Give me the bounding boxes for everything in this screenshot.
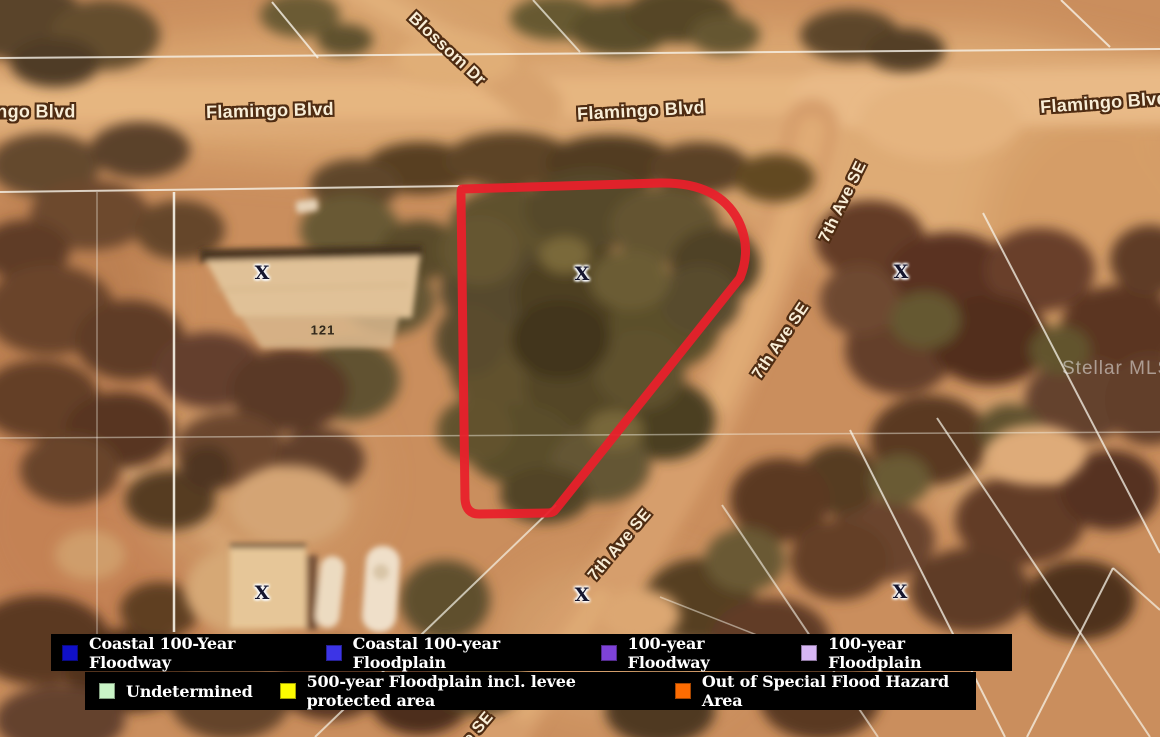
legend-label: Out of Special Flood Hazard Area	[702, 672, 949, 710]
flood-zone-x-marker: X	[893, 581, 908, 603]
street-label-flamingo-blvd-midleft: Flamingo Blvd	[206, 99, 334, 123]
legend-item-100yr-floodway: 100-year Floodway	[601, 634, 774, 672]
flood-zone-x-marker: X	[894, 261, 909, 283]
legend-label: 100-year Floodway	[628, 634, 774, 672]
legend-item-undetermined: Undetermined	[99, 682, 253, 701]
flood-zone-x-marker: X	[575, 584, 590, 606]
legend-swatch	[675, 683, 691, 699]
legend-item-500yr-floodplain: 500-year Floodplain incl. levee protecte…	[280, 672, 648, 710]
legend-item-coastal-floodplain: Coastal 100-year Floodplain	[326, 634, 574, 672]
legend-swatch	[99, 683, 115, 699]
legend-item-coastal-floodway: Coastal 100-Year Floodway	[62, 634, 299, 672]
legend-swatch	[280, 683, 296, 699]
flood-map-screenshot: ngo Blvd Flamingo Blvd Blossom Dr Flamin…	[0, 0, 1160, 737]
legend-label: Coastal 100-year Floodplain	[353, 634, 574, 672]
legend-item-100yr-floodplain: 100-year Floodplain	[801, 634, 985, 672]
legend-label: 500-year Floodplain incl. levee protecte…	[307, 672, 648, 710]
flood-zone-x-marker: X	[255, 582, 270, 604]
legend-swatch	[601, 645, 617, 661]
flood-zone-x-marker: X	[575, 263, 590, 285]
legend-swatch	[801, 645, 817, 661]
flood-legend-row-2: Undetermined 500-year Floodplain incl. l…	[85, 672, 976, 710]
legend-label: Coastal 100-Year Floodway	[89, 634, 299, 672]
stellar-mls-watermark: Stellar MLS	[1062, 358, 1160, 380]
flood-zone-x-marker: X	[255, 262, 270, 284]
legend-swatch	[326, 645, 342, 661]
aerial-map: ngo Blvd Flamingo Blvd Blossom Dr Flamin…	[0, 0, 1160, 737]
legend-label: Undetermined	[126, 682, 253, 701]
legend-label: 100-year Floodplain	[828, 634, 985, 672]
legend-item-out-of-sfha: Out of Special Flood Hazard Area	[675, 672, 949, 710]
house-number-label: 121	[311, 323, 336, 338]
street-label-flamingo-blvd-left: ngo Blvd	[0, 102, 76, 123]
legend-swatch	[62, 645, 78, 661]
flood-legend-row-1: Coastal 100-Year Floodway Coastal 100-ye…	[51, 634, 1012, 671]
